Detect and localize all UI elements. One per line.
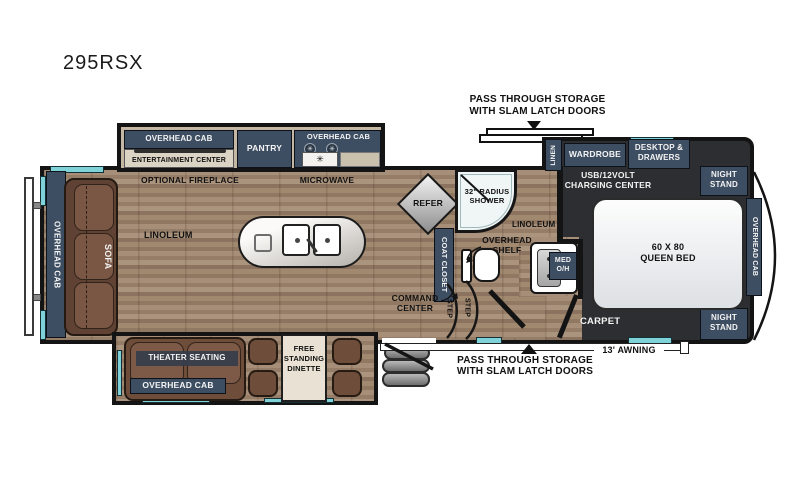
pass-through-top-callout: PASS THROUGH STORAGE WITH SLAM LATCH DOO…: [445, 94, 630, 122]
kitchen-overhead-cab-label: OVERHEAD CAB: [295, 133, 382, 141]
bedroom-overhead-cab-label: OVERHEAD CAB: [750, 217, 758, 276]
entry-step: [382, 372, 430, 387]
rear-rail: [24, 177, 34, 336]
queen-bed-line2: QUEEN BED: [594, 253, 742, 263]
linen-closet: LINEN: [545, 139, 562, 171]
dinette-chair: [248, 370, 278, 397]
pantry: PANTRY: [237, 130, 292, 168]
cooktop-burner-icon: ✳: [302, 152, 338, 167]
night-stand-top-line2: STAND: [701, 181, 747, 190]
queen-bed: 60 X 80 QUEEN BED: [592, 198, 744, 310]
dinette-chair: [248, 338, 278, 365]
wardrobe: WARDROBE: [564, 143, 626, 167]
theater-overhead-cab-label: OVERHEAD CAB: [142, 381, 213, 391]
coat-closet-label: COAT CLOSET: [440, 237, 448, 292]
dinette-line3: DINETTE: [283, 365, 325, 373]
step-label-1: STEP: [445, 299, 453, 318]
entertainment-center-label: ENTERTAINMENT CENTER: [132, 157, 226, 165]
night-stand-bottom-line2: STAND: [701, 324, 747, 333]
wardrobe-label: WARDROBE: [569, 150, 621, 160]
linoleum-label: LINOLEUM: [144, 230, 193, 240]
med-oh-line1: MED: [550, 257, 576, 265]
bedroom-overhead-cab: OVERHEAD CAB: [746, 198, 762, 296]
night-stand-top-line1: NIGHT: [701, 171, 747, 180]
dinette-chair: [332, 338, 362, 365]
pass-through-bottom-callout: PASS THROUGH STORAGE WITH SLAM LATCH DOO…: [430, 355, 620, 377]
linoleum-label-2: LINOLEUM: [512, 221, 555, 230]
entertainment-center: ENTERTAINMENT CENTER: [124, 149, 234, 168]
awning-end-cap: [680, 341, 689, 354]
pass-through-bottom-line1: PASS THROUGH STORAGE: [430, 355, 620, 366]
refrigerator: REFER: [398, 174, 458, 234]
theater-overhead-cab: OVERHEAD CAB: [130, 378, 226, 394]
entertainment-overhead-cab-label: OVERHEAD CAB: [145, 135, 212, 144]
desktop-line2: DRAWERS: [629, 154, 689, 163]
usb-charging-label: USB/12VOLT CHARGING CENTER: [556, 171, 660, 190]
theater-seating-label: THEATER SEATING: [148, 354, 225, 363]
pass-through-top-line2: WITH SLAM LATCH DOORS: [445, 106, 630, 117]
step-label-2: STEP: [463, 298, 471, 317]
sofa-label: SOFA: [103, 244, 113, 269]
dinette-line2: STANDING: [283, 355, 325, 363]
command-center-label: COMMAND CENTER: [386, 294, 444, 313]
entertainment-overhead-cab: OVERHEAD CAB: [124, 130, 234, 149]
pass-through-bottom-line2: WITH SLAM LATCH DOORS: [430, 366, 620, 377]
carpet-label: CARPET: [580, 317, 620, 328]
dinette-line1: FREE: [283, 345, 325, 353]
optional-fireplace-label: OPTIONAL FIREPLACE: [125, 176, 255, 186]
kitchen-island: [238, 216, 366, 268]
med-cabinet: MED O/H: [549, 252, 577, 280]
toilet-icon: [473, 248, 500, 282]
night-stand-bottom-line1: NIGHT: [701, 314, 747, 323]
microwave-label: MICROWAVE: [287, 176, 367, 186]
page-title: 295RSX: [63, 52, 144, 74]
window: [117, 350, 122, 396]
kitchen-slideout: OVERHEAD CAB ENTERTAINMENT CENTER PANTRY…: [117, 123, 385, 172]
linen-label: LINEN: [550, 145, 557, 166]
desktop-drawers: DESKTOP & DRAWERS: [628, 139, 690, 169]
toilet-tank: [461, 249, 472, 283]
pantry-label: PANTRY: [247, 144, 282, 154]
rear-overhead-cab: OVERHEAD CAB: [46, 171, 66, 338]
kitchen-overhead-cab: OVERHEAD CAB ✳ ✳ ✳: [294, 130, 381, 168]
command-center-line2: CENTER: [386, 304, 444, 314]
wall: [578, 239, 583, 299]
queen-bed-line1: 60 X 80: [594, 242, 742, 252]
bottom-slideout: THEATER SEATING OVERHEAD CAB FREE STANDI…: [112, 332, 378, 405]
pass-through-top-line1: PASS THROUGH STORAGE: [445, 94, 630, 105]
awning-label: 13' AWNING: [594, 345, 664, 355]
arrow-up-icon: [521, 344, 537, 354]
island-inset: [254, 234, 272, 252]
night-stand-top: NIGHT STAND: [700, 166, 748, 196]
med-oh-line2: O/H: [550, 266, 576, 274]
night-stand-bottom: NIGHT STAND: [700, 308, 748, 340]
sofa: SOFA: [64, 178, 118, 336]
counter-panel: [340, 152, 380, 167]
theater-seating-badge: THEATER SEATING: [136, 351, 238, 366]
dinette-chair: [332, 370, 362, 397]
shower-label-line2: SHOWER: [458, 197, 516, 205]
floorplan-canvas: 295RSX PASS THROUGH STORAGE WITH SLAM LA…: [0, 0, 800, 483]
usb-line2: CHARGING CENTER: [556, 181, 660, 191]
desktop-line1: DESKTOP &: [629, 144, 689, 153]
dinette-table: FREE STANDING DINETTE: [281, 334, 327, 402]
entry-step: [382, 359, 430, 373]
tv-icon: [134, 149, 226, 153]
rear-overhead-cab-label: OVERHEAD CAB: [52, 221, 61, 288]
refer-label: REFER: [398, 174, 458, 234]
sofa-backrest-line: [86, 186, 87, 328]
